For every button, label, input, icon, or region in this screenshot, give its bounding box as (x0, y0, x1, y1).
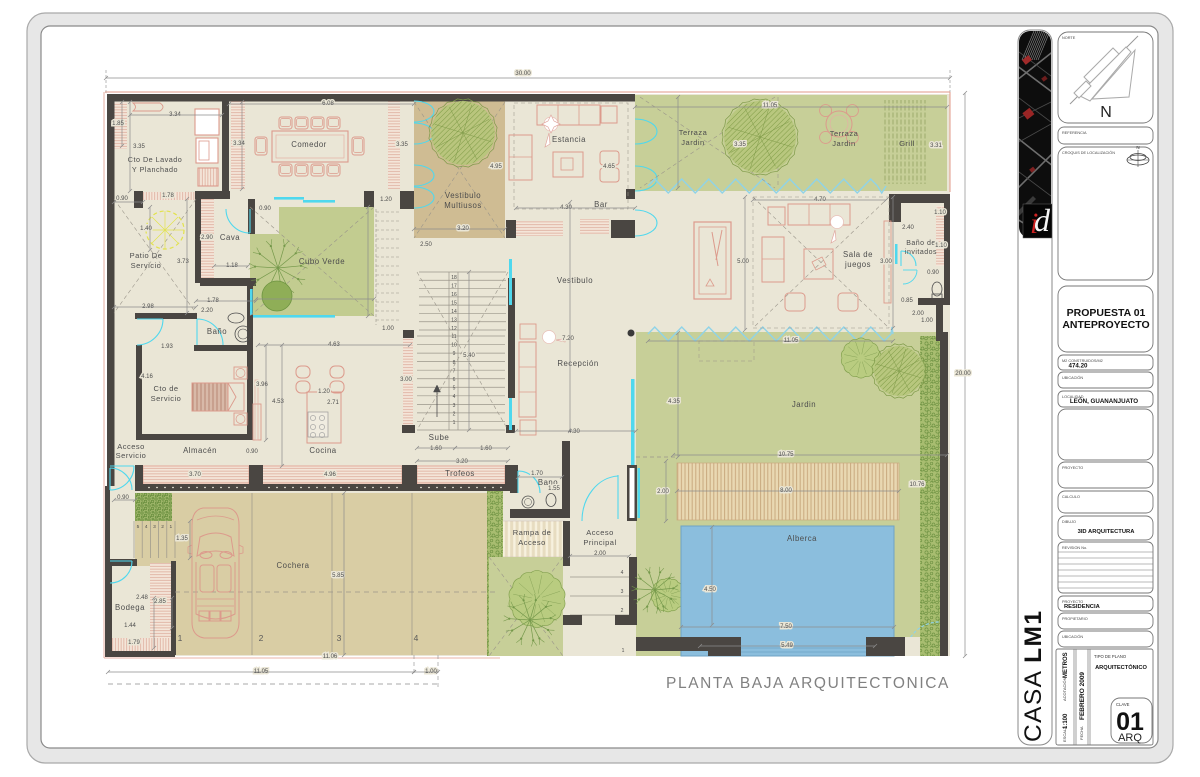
svg-text:18: 18 (451, 275, 457, 281)
svg-text:0.90: 0.90 (116, 196, 128, 202)
svg-text:5: 5 (137, 524, 140, 530)
svg-text:CLAVE: CLAVE (1116, 702, 1130, 707)
svg-text:N: N (1100, 104, 1112, 121)
svg-text:11.05: 11.05 (763, 103, 778, 109)
svg-text:RESIDENCIA: RESIDENCIA (1064, 604, 1101, 610)
svg-text:Principal: Principal (583, 538, 616, 547)
svg-text:3: 3 (153, 524, 156, 530)
svg-text:10.76: 10.76 (909, 482, 925, 488)
svg-text:FEBRERO 2009: FEBRERO 2009 (1079, 672, 1086, 720)
svg-text:1.00: 1.00 (921, 318, 933, 324)
svg-text:PROYECTO: PROYECTO (1062, 466, 1083, 470)
svg-text:Cubo Verde: Cubo Verde (299, 257, 345, 266)
svg-text:Acceso: Acceso (117, 442, 145, 451)
svg-text:DIBUJO: DIBUJO (1062, 520, 1076, 524)
svg-text:8: 8 (453, 360, 456, 366)
svg-text:5: 5 (453, 386, 456, 392)
svg-text:4.16: 4.16 (141, 374, 153, 380)
svg-text:juegos: juegos (844, 260, 871, 269)
svg-text:4: 4 (621, 570, 624, 576)
svg-text:5.00: 5.00 (737, 259, 749, 265)
svg-text:METROS: METROS (1063, 652, 1069, 678)
svg-text:0.90: 0.90 (259, 206, 271, 212)
svg-text:11.06: 11.06 (323, 654, 338, 660)
svg-text:2.40: 2.40 (902, 225, 914, 231)
svg-text:3.96: 3.96 (256, 382, 268, 388)
svg-text:5.85: 5.85 (332, 573, 344, 579)
svg-text:3.35: 3.35 (396, 142, 408, 148)
svg-text:PROPIETARIO: PROPIETARIO (1062, 617, 1088, 621)
svg-text:Cocina: Cocina (309, 446, 336, 455)
svg-text:1.20: 1.20 (380, 197, 392, 203)
svg-text:2: 2 (453, 411, 456, 417)
svg-text:Bodega: Bodega (115, 603, 145, 612)
svg-text:6: 6 (453, 377, 456, 383)
svg-text:4.50: 4.50 (704, 587, 716, 593)
svg-text:7.20: 7.20 (562, 336, 574, 342)
svg-text:2: 2 (161, 524, 164, 530)
svg-text:Recepción: Recepción (557, 359, 598, 368)
svg-text:Trofeos: Trofeos (445, 469, 475, 478)
svg-text:Vestibulo: Vestibulo (557, 276, 593, 285)
svg-text:3.00: 3.00 (880, 259, 892, 265)
svg-text:CASA LM1: CASA LM1 (1020, 610, 1047, 742)
svg-text:Cto de: Cto de (153, 384, 178, 393)
svg-text:4: 4 (414, 633, 419, 643)
svg-text:LEÓN, GUANANJUATO: LEÓN, GUANANJUATO (1070, 397, 1138, 405)
svg-text:ARQUITECTÓNICO: ARQUITECTÓNICO (1095, 663, 1147, 671)
svg-text:0.90: 0.90 (927, 270, 939, 276)
svg-text:0.90: 0.90 (246, 449, 258, 455)
svg-text:Comedor: Comedor (291, 140, 327, 149)
svg-text:11: 11 (451, 334, 456, 340)
svg-text:4.65: 4.65 (603, 164, 615, 170)
svg-text:FECHA: FECHA (1079, 726, 1084, 740)
svg-text:ACOTACIÓN: ACOTACIÓN (1062, 677, 1067, 701)
svg-text:16: 16 (451, 292, 457, 298)
svg-text:3: 3 (337, 633, 342, 643)
svg-text:9: 9 (453, 351, 456, 357)
svg-text:3.00: 3.00 (400, 377, 412, 383)
svg-text:1.85: 1.85 (112, 121, 124, 127)
svg-text:Y Planchado: Y Planchado (132, 165, 178, 174)
svg-text:ESCALA: ESCALA (1062, 726, 1067, 742)
svg-text:2.85: 2.85 (154, 599, 166, 605)
svg-text:2.00: 2.00 (912, 311, 924, 317)
svg-text:1.78: 1.78 (162, 193, 174, 199)
svg-text:1.55: 1.55 (548, 486, 560, 492)
svg-text:1: 1 (622, 648, 625, 654)
svg-text:1: 1 (169, 524, 172, 530)
svg-text:4.53: 4.53 (272, 399, 284, 405)
svg-text:Cto De Lavado: Cto De Lavado (128, 155, 182, 164)
svg-text:1.44: 1.44 (124, 623, 136, 629)
svg-text:Almacén: Almacén (183, 446, 217, 455)
svg-text:REVISION No.: REVISION No. (1062, 546, 1087, 550)
svg-text:d: d (1034, 202, 1051, 238)
svg-text:PROPUESTA 01: PROPUESTA 01 (1067, 307, 1146, 319)
svg-text:Vestibulo: Vestibulo (445, 191, 481, 200)
svg-text:Estancia: Estancia (552, 135, 586, 144)
svg-text:Patio De: Patio De (130, 251, 163, 260)
svg-text:Baño: Baño (207, 327, 227, 336)
svg-text:Terraza: Terraza (830, 129, 859, 138)
svg-text:3.20: 3.20 (456, 459, 468, 465)
svg-text:1: 1 (453, 420, 456, 426)
svg-text:UBICACIÓN: UBICACIÓN (1062, 634, 1083, 639)
svg-text:4.95: 4.95 (490, 164, 502, 170)
svg-text:Cochera: Cochera (277, 561, 310, 570)
svg-text:Servicio: Servicio (131, 261, 162, 270)
svg-text:Acceso: Acceso (586, 528, 614, 537)
svg-text:Grill: Grill (899, 139, 915, 148)
svg-text:TIPO DE PLANO: TIPO DE PLANO (1094, 654, 1127, 659)
svg-text:Terraza: Terraza (679, 128, 708, 137)
svg-text:4.96: 4.96 (324, 472, 336, 478)
svg-text:17: 17 (451, 284, 457, 290)
svg-text:1.93: 1.93 (161, 344, 173, 350)
svg-text:CROQUIS DE LOCALIZACIÓN: CROQUIS DE LOCALIZACIÓN (1062, 150, 1115, 155)
svg-text:3.35: 3.35 (734, 142, 746, 148)
svg-text:14: 14 (451, 309, 457, 315)
svg-text:2.50: 2.50 (420, 242, 432, 248)
svg-text:1: 1 (178, 633, 183, 643)
svg-text:3.35: 3.35 (133, 144, 145, 150)
svg-text:PLANTA BAJA ARQUITECTONICA: PLANTA BAJA ARQUITECTONICA (666, 675, 950, 692)
svg-text:4: 4 (453, 394, 456, 400)
svg-text:0.85: 0.85 (901, 298, 913, 304)
svg-text:Sube: Sube (429, 433, 450, 442)
svg-text:2: 2 (621, 608, 624, 614)
svg-text:3.70: 3.70 (189, 472, 201, 478)
svg-text:1.79: 1.79 (128, 640, 140, 646)
svg-text:Jardin: Jardin (681, 138, 704, 147)
svg-text:30.00: 30.00 (515, 70, 531, 77)
svg-text:Rampa de: Rampa de (513, 528, 552, 537)
svg-text:20.00: 20.00 (955, 370, 971, 377)
svg-text:1.70: 1.70 (531, 471, 543, 477)
svg-text:3: 3 (453, 403, 456, 409)
svg-text:Acceso: Acceso (518, 538, 546, 547)
svg-text:10: 10 (451, 343, 457, 349)
svg-text:1.00: 1.00 (382, 326, 394, 332)
svg-text:1.60: 1.60 (480, 446, 492, 452)
svg-text:1.10: 1.10 (934, 210, 946, 216)
svg-text:3.73: 3.73 (177, 259, 189, 265)
svg-text:1.20: 1.20 (318, 389, 330, 395)
svg-text:ARQ: ARQ (1118, 732, 1142, 744)
svg-text:CALCULO: CALCULO (1062, 495, 1080, 499)
svg-text:15: 15 (451, 301, 457, 307)
svg-text:2.20: 2.20 (201, 308, 213, 314)
svg-text:2.00: 2.00 (657, 489, 669, 495)
svg-text:474.20: 474.20 (1069, 363, 1088, 370)
svg-text:4.35: 4.35 (668, 399, 680, 405)
svg-text:NORTE: NORTE (1062, 36, 1076, 40)
svg-text:ANTEPROYECTO: ANTEPROYECTO (1062, 319, 1149, 331)
svg-text:Cava: Cava (220, 233, 240, 242)
svg-text:Sala de: Sala de (843, 250, 873, 259)
svg-text:12: 12 (451, 326, 457, 332)
svg-text:1.40: 1.40 (140, 226, 152, 232)
svg-text:UBICACIÓN: UBICACIÓN (1062, 375, 1083, 380)
svg-text:invitados: invitados (905, 249, 937, 256)
svg-text:13: 13 (451, 318, 457, 324)
svg-text:Jardin: Jardin (792, 400, 816, 409)
svg-text:REFERENCIA: REFERENCIA (1062, 131, 1087, 135)
svg-text:3.31: 3.31 (930, 143, 942, 149)
svg-text:7: 7 (453, 368, 456, 374)
svg-text:1.35: 1.35 (176, 536, 188, 542)
svg-text:Servicio: Servicio (116, 451, 147, 460)
svg-text:Baño de: Baño de (906, 240, 936, 247)
svg-text:3ID ARQUITECTURA: 3ID ARQUITECTURA (1078, 529, 1136, 535)
svg-text:2: 2 (259, 633, 264, 643)
svg-text:2.90: 2.90 (201, 235, 213, 241)
svg-text:Alberca: Alberca (787, 534, 817, 543)
svg-text:2.48: 2.48 (136, 595, 148, 601)
svg-text:3: 3 (621, 589, 624, 595)
svg-text:2.71: 2.71 (327, 400, 339, 406)
svg-text:3.34: 3.34 (233, 141, 245, 147)
svg-text:Servicio: Servicio (151, 394, 182, 403)
svg-text:N: N (1136, 145, 1139, 150)
svg-text:1.60: 1.60 (430, 446, 442, 452)
svg-text:Jardin: Jardin (832, 139, 855, 148)
svg-text:1.10: 1.10 (935, 243, 947, 249)
svg-text:Multiusos: Multiusos (444, 201, 481, 210)
svg-text:4: 4 (145, 524, 148, 530)
